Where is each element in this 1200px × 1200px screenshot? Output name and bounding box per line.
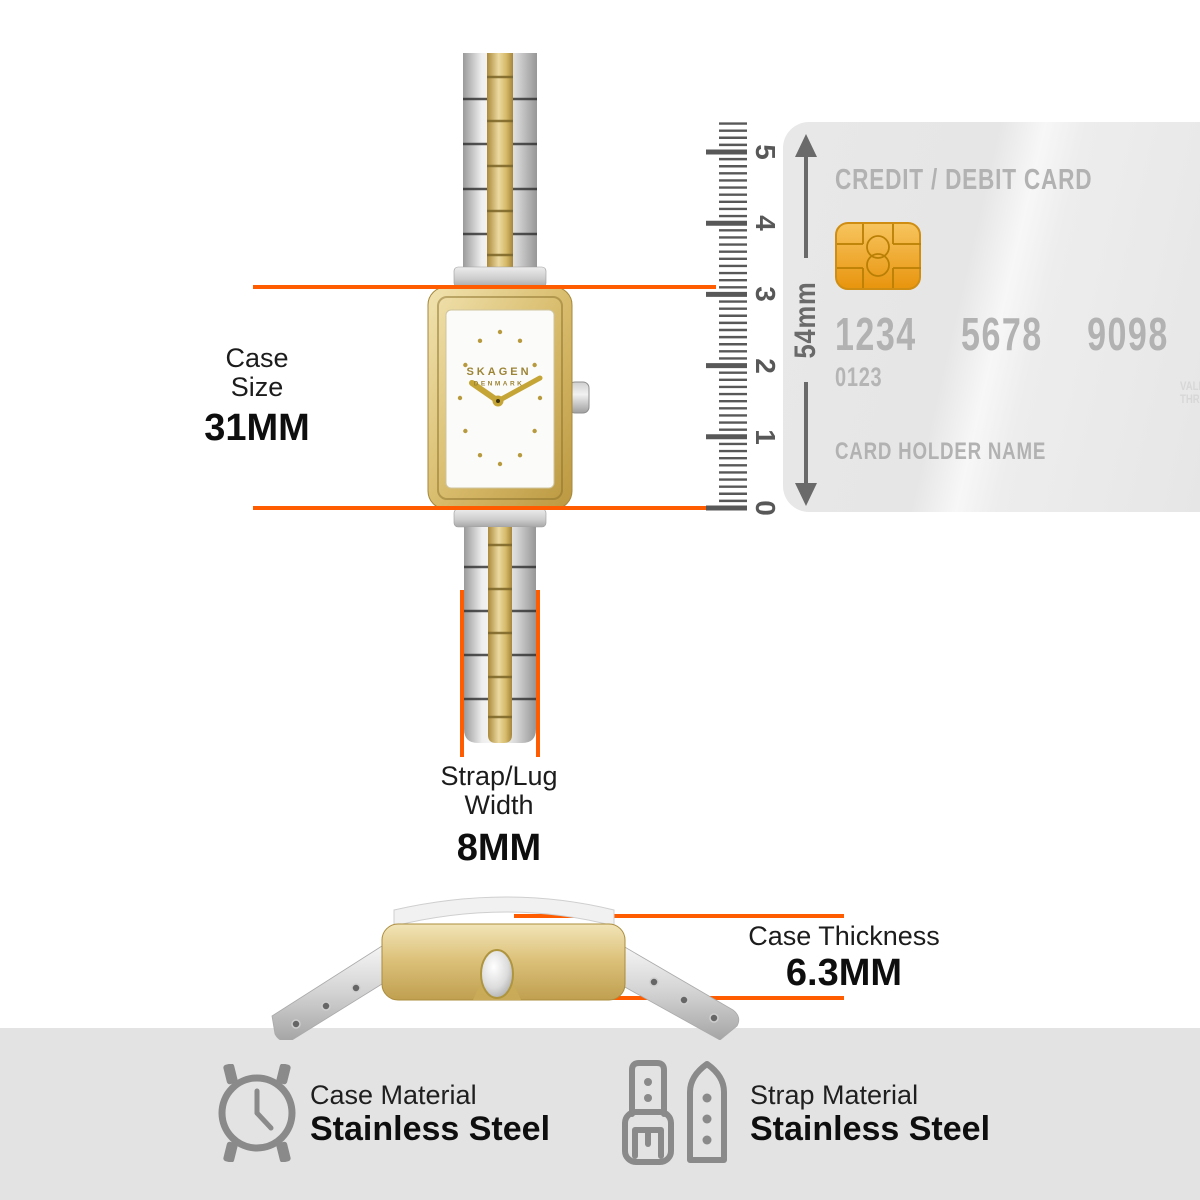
case-size-label-block: Case Size 31MM xyxy=(157,344,357,450)
case-size-value: 31MM xyxy=(157,406,357,450)
strap-material-block: Strap Material Stainless Steel xyxy=(750,1080,990,1148)
case-material-value: Stainless Steel xyxy=(310,1110,550,1148)
side-glass xyxy=(394,897,614,926)
strap-width-value: 8MM xyxy=(399,826,599,870)
case-size-label-line1: Case xyxy=(157,344,357,373)
strap-width-label-line2: Width xyxy=(399,791,599,820)
measure-line-case-top xyxy=(253,285,716,289)
dial-hour-marker xyxy=(518,339,522,343)
strap-width-label-line1: Strap/Lug xyxy=(399,762,599,791)
ruler-tick-label: 5 xyxy=(749,144,781,160)
dial-hour-marker xyxy=(478,453,482,457)
case-size-label-line2: Size xyxy=(157,373,357,402)
ruler-tick-label: 4 xyxy=(749,215,781,231)
dial-hour-marker xyxy=(458,396,462,400)
card-sub-number: 0123 xyxy=(835,362,882,393)
card-number-group: 9098 xyxy=(1087,307,1169,361)
dial-hour-marker xyxy=(463,429,467,433)
card-number-group: 5678 xyxy=(961,307,1043,361)
card-holder-label: CARD HOLDER NAME xyxy=(835,438,1046,466)
strap-material-value: Stainless Steel xyxy=(750,1110,990,1148)
case-thickness-label: Case Thickness xyxy=(738,922,950,951)
card-height-label: 54mm xyxy=(789,281,823,358)
measure-line-case-bottom xyxy=(253,506,716,510)
watch-case xyxy=(428,287,589,509)
page-background: { "watch": { "brand": "SKAGEN", "brand_s… xyxy=(0,0,1200,1200)
bracelet-bottom xyxy=(454,509,546,743)
valid-thru-line: THRU xyxy=(1180,393,1200,406)
case-thickness-label-block: Case Thickness 6.3MM xyxy=(738,922,950,995)
credit-card: CREDIT / DEBIT CARD 1234 5678 9098 0123 … xyxy=(783,122,1200,512)
watch-side-graphic xyxy=(270,890,745,1040)
card-number-row: 1234 5678 9098 xyxy=(835,307,1169,361)
dial-hour-marker xyxy=(518,453,522,457)
watch-case-icon xyxy=(213,1064,301,1162)
ruler-tick-label: 2 xyxy=(749,358,781,374)
strap-width-label-block: Strap/Lug Width 8MM xyxy=(399,762,599,870)
side-crown xyxy=(481,950,513,998)
side-bracelet-right xyxy=(623,946,739,1040)
dial-hour-marker xyxy=(538,396,542,400)
dial-hour-marker xyxy=(478,339,482,343)
card-chip-icon xyxy=(835,222,921,290)
side-bracelet-left xyxy=(272,946,382,1040)
strap-material-label: Strap Material xyxy=(750,1080,990,1110)
watch-front-graphic xyxy=(400,45,620,765)
card-number-group: 1234 xyxy=(835,307,917,361)
ruler-tick-label: 0 xyxy=(749,500,781,516)
card-title: CREDIT / DEBIT CARD xyxy=(835,164,1092,197)
dial-hour-marker xyxy=(498,330,502,334)
case-material-label: Case Material xyxy=(310,1080,550,1110)
dial-hour-marker xyxy=(532,363,536,367)
ruler-tick-label: 1 xyxy=(749,429,781,445)
case-material-block: Case Material Stainless Steel xyxy=(310,1080,550,1148)
dial-hour-marker xyxy=(498,462,502,466)
dial-brand-subtext: DENMARK xyxy=(474,381,525,388)
side-case xyxy=(382,897,625,1000)
card-valid-thru: VALID THRU xyxy=(1180,380,1200,406)
ruler-graphic xyxy=(698,110,750,518)
dial-hour-marker xyxy=(532,429,536,433)
strap-material-icon xyxy=(622,1058,734,1168)
bracelet-top xyxy=(454,53,546,289)
measure-line-strap-left xyxy=(460,590,464,757)
measure-line-strap-right xyxy=(536,590,540,757)
dial-brand-text: SKAGEN xyxy=(466,366,531,378)
ruler-tick-label: 3 xyxy=(749,286,781,302)
case-thickness-value: 6.3MM xyxy=(738,951,950,995)
footer-strip xyxy=(0,1028,1200,1200)
